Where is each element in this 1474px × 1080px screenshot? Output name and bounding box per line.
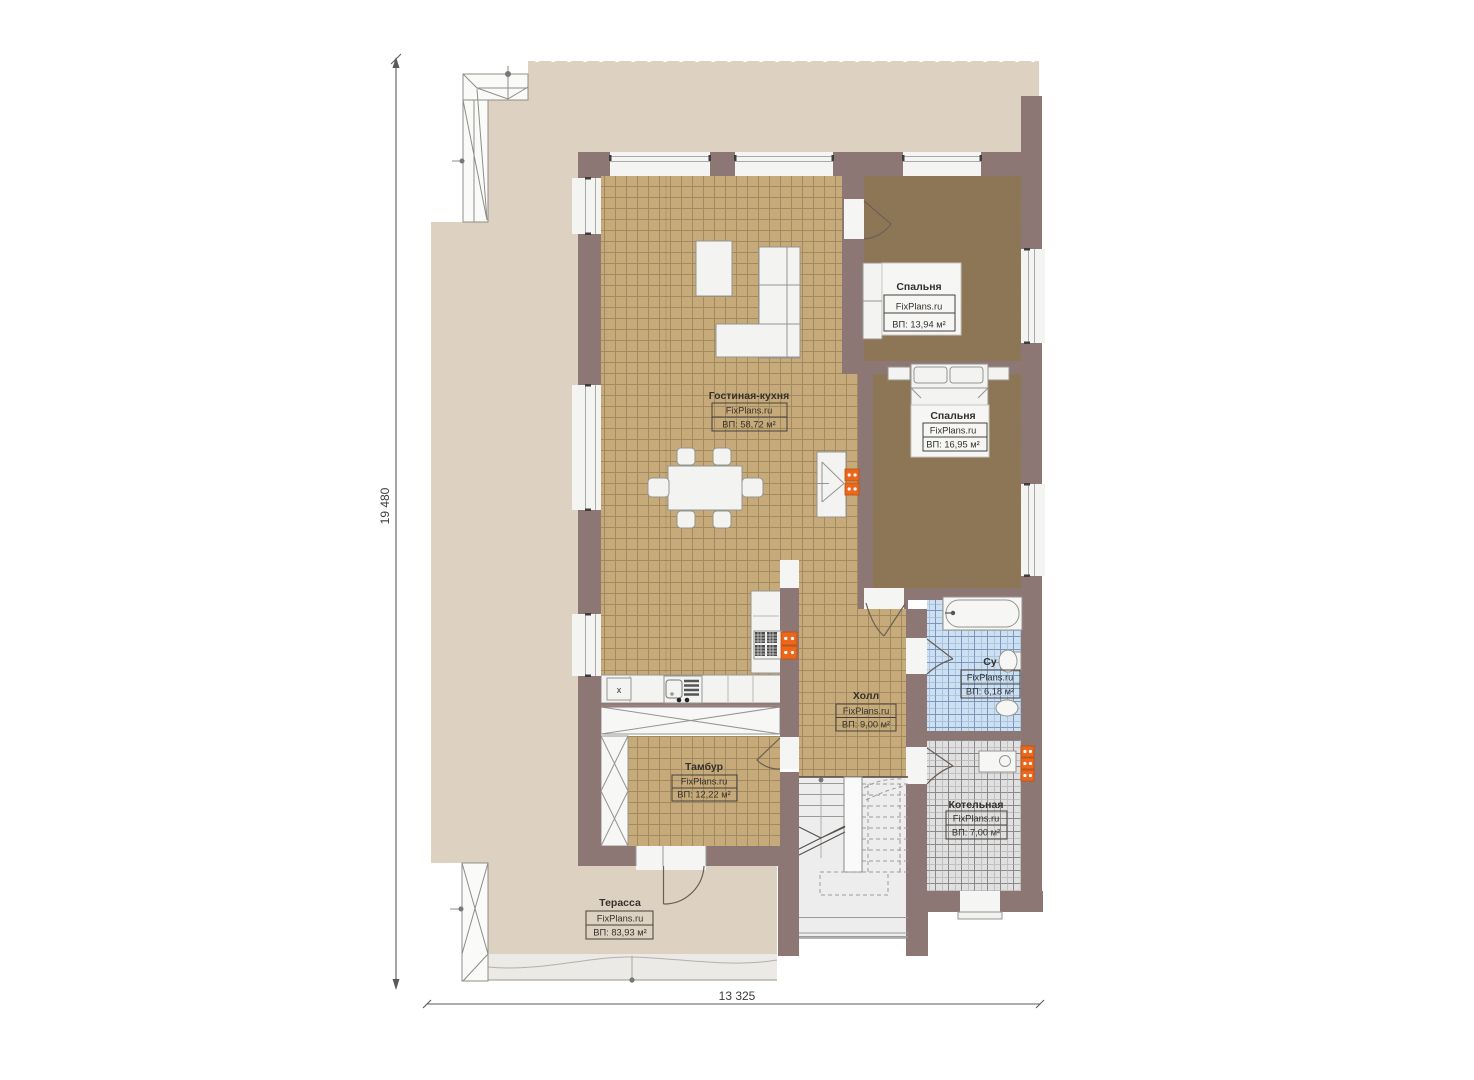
svg-text:x: x	[617, 685, 622, 695]
svg-text:FixPlans.ru: FixPlans.ru	[953, 814, 1000, 824]
svg-text:Спальня: Спальня	[930, 410, 975, 422]
svg-text:ВП: 12,22 м²: ВП: 12,22 м²	[677, 790, 730, 800]
svg-text:Спальня: Спальня	[896, 281, 941, 293]
svg-text:Тамбур: Тамбур	[685, 761, 723, 773]
svg-text:Холл: Холл	[853, 690, 879, 702]
svg-text:ВП: 6,18 м²: ВП: 6,18 м²	[966, 687, 1014, 697]
svg-text:FixPlans.ru: FixPlans.ru	[726, 406, 773, 416]
svg-text:ВП: 16,95 м²: ВП: 16,95 м²	[926, 440, 979, 450]
svg-text:Су: Су	[983, 656, 997, 668]
svg-text:FixPlans.ru: FixPlans.ru	[967, 673, 1014, 683]
svg-text:19 480: 19 480	[378, 487, 392, 524]
svg-text:ВП: 7,00 м²: ВП: 7,00 м²	[952, 828, 1000, 838]
svg-text:ВП: 13,94 м²: ВП: 13,94 м²	[892, 320, 945, 330]
svg-text:Терасса: Терасса	[599, 897, 641, 909]
svg-text:FixPlans.ru: FixPlans.ru	[597, 914, 644, 924]
svg-text:FixPlans.ru: FixPlans.ru	[681, 777, 728, 787]
svg-text:13 325: 13 325	[719, 989, 756, 1003]
svg-text:Котельная: Котельная	[949, 799, 1004, 811]
svg-text:FixPlans.ru: FixPlans.ru	[896, 302, 943, 312]
svg-text:FixPlans.ru: FixPlans.ru	[843, 706, 890, 716]
svg-text:Гостиная-кухня: Гостиная-кухня	[709, 390, 789, 402]
svg-text:ВП: 83,93 м²: ВП: 83,93 м²	[593, 928, 646, 938]
svg-text:FixPlans.ru: FixPlans.ru	[930, 426, 977, 436]
svg-text:ВП: 9,00 м²: ВП: 9,00 м²	[842, 720, 890, 730]
svg-text:ВП: 58,72 м²: ВП: 58,72 м²	[722, 420, 775, 430]
